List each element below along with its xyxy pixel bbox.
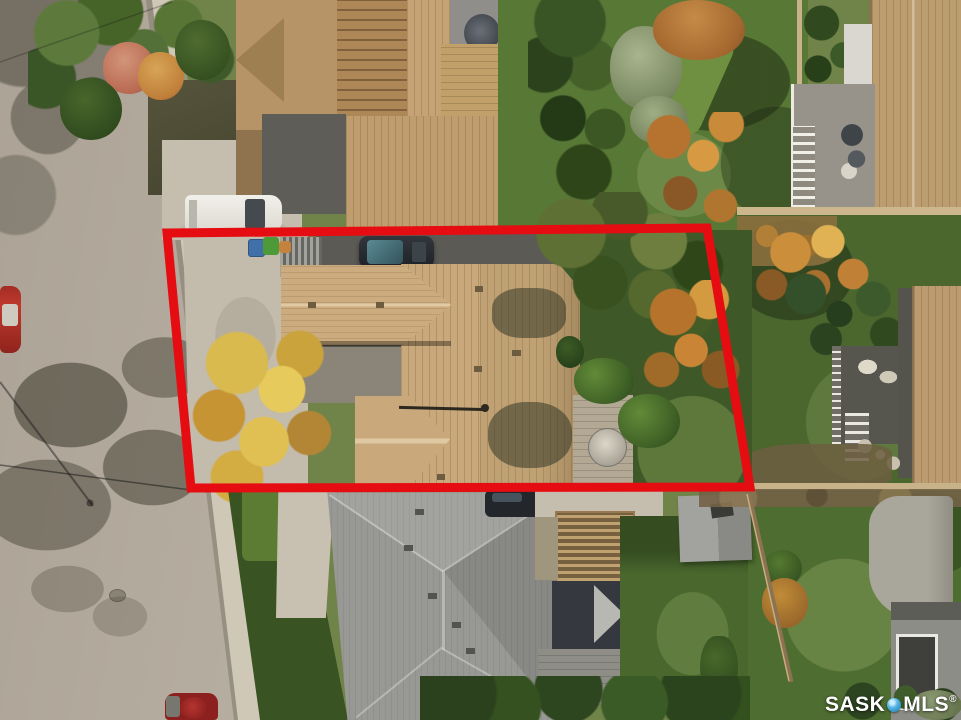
watermark-sask: SASK (825, 693, 885, 717)
watermark-mls: MLS (903, 693, 949, 717)
mls-pin-icon (887, 698, 901, 712)
boundary-overlay (0, 0, 961, 720)
property-boundary-outline (167, 228, 750, 488)
aerial-photo: SASK MLS ® (0, 0, 961, 720)
registered-mark: ® (949, 694, 957, 705)
watermark: SASK MLS ® (825, 693, 957, 717)
